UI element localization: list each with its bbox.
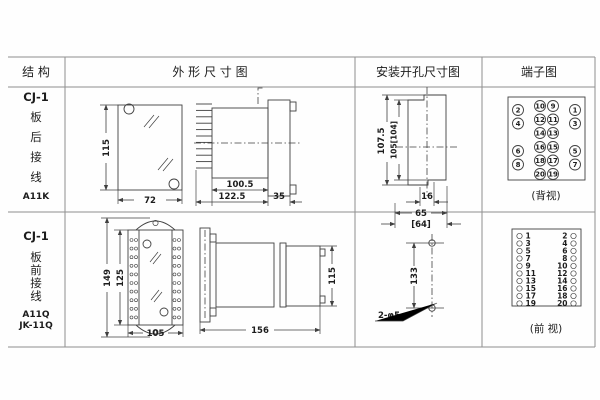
- terminal-number: 6: [516, 148, 521, 156]
- header-outline-dims: 外 形 尺 寸 图: [172, 65, 247, 79]
- header-row: 结 构 外 形 尺 寸 图 安装开孔尺寸图 端子图: [22, 64, 557, 79]
- dim-105-104: 105[104]: [390, 121, 399, 159]
- rear-block: [286, 246, 320, 306]
- row1-structure-char: 板: [30, 110, 42, 124]
- row1-mounting-diagram: 107.5 105[104] 16 65 [64]: [377, 87, 461, 230]
- row1-structure-char: 接: [30, 150, 42, 164]
- terminal-number: 7: [573, 161, 578, 169]
- terminal-number: 2: [516, 107, 521, 115]
- terminal-number: 18: [535, 157, 545, 165]
- terminal-number: 17: [548, 157, 558, 165]
- row1-structure: CJ-1 板 后 接 线 A11K: [23, 90, 50, 202]
- row1-outline-side-view: 100.5 122.5 35: [194, 88, 302, 206]
- dim-100-5: 100.5: [227, 180, 254, 190]
- row1-structure-char: 后: [30, 130, 42, 144]
- row2-terminal-diagram: 1 3 5 7 9 11 13 15 17 19 2 4 6 8 10 12 1…: [512, 229, 581, 335]
- handle-center-line: [258, 88, 264, 104]
- dim-149: 149: [103, 269, 113, 287]
- terminal-number: 10: [535, 103, 545, 111]
- terminal-number: 9: [551, 103, 556, 111]
- terminal-number: 20: [535, 171, 545, 179]
- terminal-number: 19: [526, 299, 536, 308]
- row2-code-2: JK-11Q: [18, 321, 53, 331]
- left-terminal-strip-dots: [130, 239, 138, 319]
- dim-107-5: 107.5: [377, 127, 387, 154]
- row2-model: CJ-1: [23, 229, 49, 243]
- header-mounting-dims: 安装开孔尺寸图: [376, 64, 460, 79]
- row2-code-1: A11Q: [22, 310, 49, 320]
- dim-35: 35: [273, 192, 285, 202]
- terminal-number: 16: [535, 144, 545, 152]
- mount-tab-top: [290, 102, 296, 111]
- dim-64-alt: [64]: [411, 220, 431, 230]
- pin-comb: [196, 104, 212, 168]
- relay-dimension-sheet: 结 构 外 形 尺 寸 图 安装开孔尺寸图 端子图 CJ-1 板 后 接 线 A…: [0, 0, 600, 400]
- dim-72: 72: [144, 196, 156, 206]
- dim-115-side: 115: [328, 267, 338, 285]
- dim-105: 105: [147, 329, 165, 339]
- terminal-number: 4: [516, 120, 521, 128]
- row2-structure: CJ-1 板 前 接 线 A11Q JK-11Q: [18, 229, 53, 331]
- glass-hatch-marks: [150, 252, 162, 302]
- dim-122-5: 122.5: [219, 192, 246, 202]
- dimension-table-drawing: 结 构 外 形 尺 寸 图 安装开孔尺寸图 端子图 CJ-1 板 后 接 线 A…: [0, 0, 600, 400]
- terminal-number: 3: [573, 120, 578, 128]
- right-terminal-strip-dots: [173, 239, 181, 319]
- row2-outline-front-view: 149 125 105: [101, 218, 183, 339]
- dim-125: 125: [116, 269, 126, 287]
- row1-code: A11K: [23, 192, 50, 202]
- row2-outline-side-view: 115 156: [200, 228, 338, 336]
- dim-16: 16: [421, 192, 433, 202]
- row2-structure-char: 前: [30, 263, 42, 277]
- glass-hatch-marks: [144, 115, 173, 171]
- dim-156: 156: [251, 326, 269, 336]
- terminal-number: 20: [557, 299, 567, 308]
- terminal-number: 8: [516, 161, 521, 169]
- dim-115: 115: [102, 139, 112, 157]
- mount-tab-bottom: [290, 185, 296, 194]
- header-terminal-diagram: 端子图: [521, 65, 557, 79]
- row1-structure-char: 线: [30, 170, 42, 184]
- row2-structure-char: 接: [30, 276, 42, 290]
- row1-model: CJ-1: [23, 90, 49, 104]
- terminal-number: 12: [535, 116, 545, 124]
- dim-133: 133: [410, 267, 420, 285]
- terminal-number: 14: [535, 130, 545, 138]
- row2-structure-char: 线: [30, 289, 42, 303]
- rear-view-label: (背视): [531, 189, 560, 202]
- row1-terminal-diagram: 10 12 14 16 18 20 9 11 13 15 17 19 2 4 6…: [508, 97, 585, 202]
- row2-structure-char: 板: [30, 250, 42, 264]
- dim-65: 65: [415, 209, 427, 219]
- relay-body: [216, 243, 274, 307]
- terminal-number: 13: [548, 130, 558, 138]
- terminal-number: 1: [573, 107, 578, 115]
- terminal-number: 11: [548, 116, 558, 124]
- terminal-number: 5: [573, 148, 578, 156]
- row1-outline-front-view: 115 72: [100, 104, 182, 206]
- front-view-label: (前 视): [530, 322, 563, 335]
- row2-mounting-diagram: 133 2-φ5: [375, 234, 444, 321]
- terminal-number: 15: [548, 144, 558, 152]
- terminal-number: 19: [548, 171, 558, 179]
- header-structure: 结 构: [22, 64, 50, 79]
